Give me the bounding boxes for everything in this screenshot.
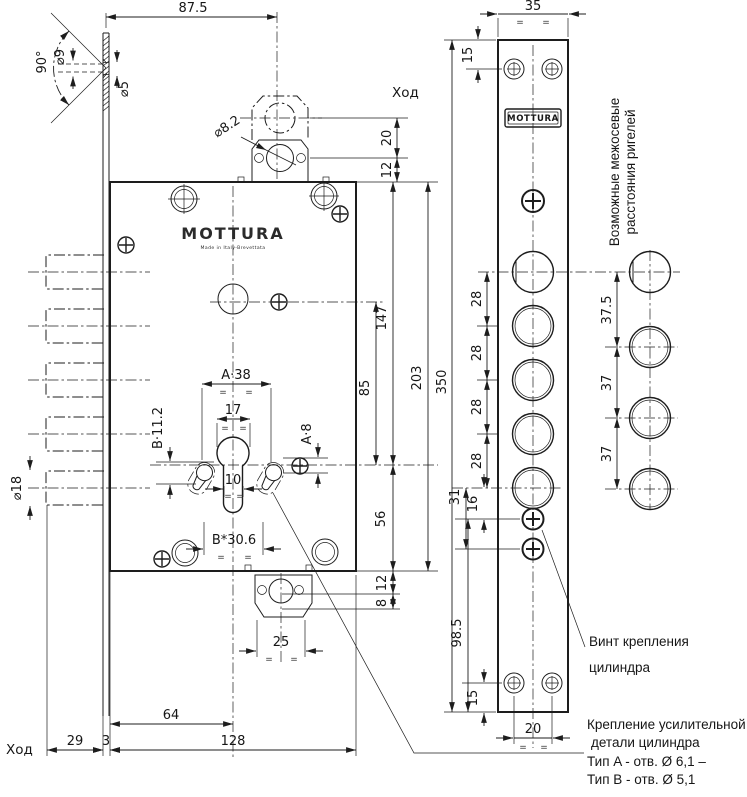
badge-text: MOTTURA	[507, 114, 559, 124]
dim-28-3: 28	[470, 399, 485, 416]
eq-mark: =	[245, 388, 253, 398]
dim-37-b: 37	[600, 446, 615, 463]
eq-mark: =	[239, 424, 247, 434]
faceplate-screw-bottom-right	[542, 673, 562, 693]
dimensions-left-view	[47, 13, 438, 756]
dim-20-top: 20	[380, 130, 395, 147]
cylinder-screw-note-line1: Винт крепления	[589, 634, 689, 649]
dim-20-faceplate: 20	[525, 722, 542, 737]
dim-b306: B*30.6	[212, 533, 256, 548]
reinforcement-note-line3: Тип A - отв. Ø 6,1 –	[587, 754, 706, 769]
dim-8-bottom: 8	[375, 599, 390, 607]
label-stroke-bottom: Ход	[6, 742, 33, 758]
label-stroke-top: Ход	[392, 85, 419, 101]
dim-29: 29	[67, 734, 84, 749]
eq-mark: =	[217, 553, 225, 563]
axle-note-line2: расстояния ригелей	[623, 109, 638, 234]
dim-203: 203	[410, 366, 425, 391]
eq-mark: =	[224, 492, 232, 502]
door-edge-plate	[58, 33, 109, 716]
eq-mark: =	[244, 553, 252, 563]
dim-12-top: 12	[380, 162, 395, 179]
eq-mark: =	[290, 655, 298, 665]
dim-25: 25	[273, 635, 290, 650]
dim-3: 3	[102, 734, 110, 749]
reinforcement-note-line4: Тип B - отв. Ø 5,1	[587, 772, 695, 787]
dim-35: 35	[525, 0, 542, 14]
dim-28-1: 28	[470, 291, 485, 308]
dim-28-2: 28	[470, 345, 485, 362]
dim-dia82: ⌀8.2	[211, 113, 243, 141]
dim-37-a: 37	[600, 375, 615, 392]
eq-mark: =	[519, 743, 527, 753]
lock-technical-drawing: 87.5 90° ⌀9 ⌀5 ⌀8.2 Ход 20 12 MOTTURA Ma…	[0, 0, 747, 797]
dim-15-top: 15	[461, 47, 476, 64]
dim-56: 56	[374, 511, 389, 528]
eq-mark: =	[219, 388, 227, 398]
follower-hole-left	[168, 184, 200, 214]
dim-31: 31	[448, 489, 463, 506]
top-strike-bracket	[240, 12, 322, 182]
faceplate-screw-top-left	[504, 59, 524, 79]
axle-note-line1: Возможные межосевые	[607, 98, 622, 246]
leader-lines	[273, 493, 585, 753]
eq-mark: =	[516, 18, 524, 28]
dim-12-bottom: 12	[375, 575, 390, 592]
dim-85: 85	[358, 380, 373, 397]
cylinder-screw-note-line2: цилиндра	[589, 660, 651, 675]
lock-body	[110, 177, 438, 758]
dim-dia9: ⌀9	[53, 49, 68, 65]
dim-350: 350	[435, 370, 450, 395]
follower-hole-right	[309, 181, 339, 211]
dim-128: 128	[221, 734, 246, 749]
reinforcement-note-line1: Крепление усилительной	[587, 717, 746, 732]
dim-87-5: 87.5	[179, 1, 208, 16]
dim-90deg: 90°	[35, 50, 50, 73]
dim-a8: A·8	[300, 423, 315, 444]
brand-logo-sub: Made in Italy-Brevettata	[201, 245, 266, 251]
dim-147: 147	[375, 306, 390, 331]
faceplate-screw-bottom-left	[504, 673, 524, 693]
dim-dia18: ⌀18	[10, 476, 25, 500]
eq-mark: =	[542, 18, 550, 28]
alt-bolt-positions	[605, 250, 678, 510]
dim-b112: B·11.2	[151, 407, 166, 449]
dim-dia5: ⌀5	[117, 81, 132, 97]
reinforcement-note-line2: детали цилиндра	[591, 735, 700, 750]
dim-15-bottom: 15	[466, 690, 481, 707]
eq-mark: =	[265, 655, 273, 665]
equality-marks: = = = = = = = = = = = = = =	[217, 18, 550, 753]
eq-mark: =	[236, 492, 244, 502]
dim-17: 17	[225, 403, 242, 418]
dim-a38: A·38	[221, 368, 251, 383]
faceplate-view	[498, 40, 568, 748]
dim-64: 64	[163, 708, 180, 723]
dim-16: 16	[466, 496, 481, 513]
drawing-canvas: 87.5 90° ⌀9 ⌀5 ⌀8.2 Ход 20 12 MOTTURA Ma…	[0, 0, 747, 797]
dim-98-5: 98.5	[450, 619, 465, 648]
eq-mark: =	[540, 743, 548, 753]
fixing-screw	[522, 190, 544, 212]
deadbolts	[28, 255, 150, 520]
dim-10: 10	[225, 473, 242, 488]
faceplate-screw-top-right	[542, 59, 562, 79]
dim-28-4: 28	[470, 453, 485, 470]
eq-mark: =	[221, 424, 229, 434]
brand-logo: MOTTURA	[181, 224, 284, 243]
dim-37-5: 37.5	[600, 296, 615, 325]
